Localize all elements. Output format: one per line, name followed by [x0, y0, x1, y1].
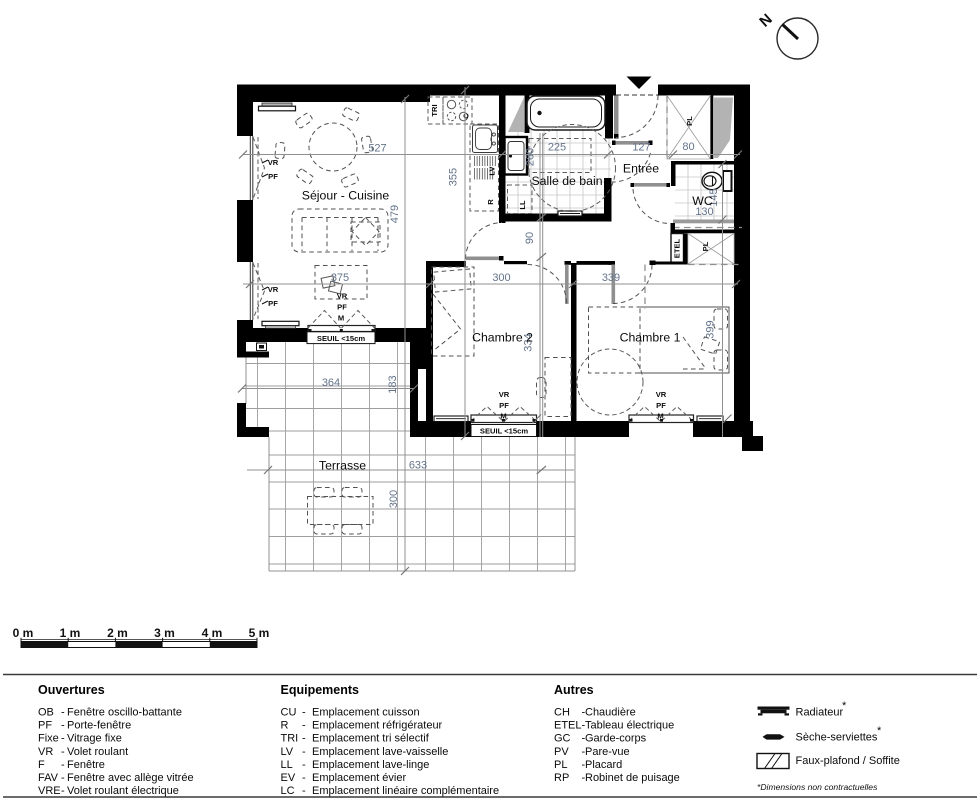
svg-text:Robinet de puisage: Robinet de puisage: [585, 772, 680, 784]
svg-text:3 m: 3 m: [154, 626, 175, 640]
svg-text:ETEL: ETEL: [554, 720, 582, 732]
svg-text:Volet roulant: Volet roulant: [67, 746, 128, 758]
svg-text:Garde-corps: Garde-corps: [585, 733, 647, 745]
svg-text:PF: PF: [38, 720, 52, 732]
svg-text:CU: CU: [281, 707, 297, 719]
svg-text:Porte-fenêtre: Porte-fenêtre: [67, 720, 131, 732]
svg-text:Emplacement cuisson: Emplacement cuisson: [312, 707, 420, 719]
svg-text:PF: PF: [337, 303, 347, 312]
svg-text:Fixe: Fixe: [38, 733, 59, 745]
svg-text:LV: LV: [488, 165, 497, 175]
svg-text:Chaudière: Chaudière: [585, 707, 636, 719]
svg-text:1 m: 1 m: [60, 626, 81, 640]
svg-text:Emplacement linéaire complémen: Emplacement linéaire complémentaire: [312, 785, 499, 797]
svg-text:-: -: [302, 746, 306, 758]
svg-text:LV: LV: [281, 746, 294, 758]
svg-text:*: *: [877, 725, 882, 737]
svg-text:633: 633: [409, 460, 427, 472]
svg-text:PL: PL: [701, 241, 710, 251]
svg-text:5 m: 5 m: [249, 626, 270, 640]
svg-text:ETEL: ETEL: [673, 238, 682, 258]
svg-text:*Dimensions non contractuelles: *Dimensions non contractuelles: [757, 782, 878, 792]
svg-text:Tableau électrique: Tableau électrique: [585, 720, 674, 732]
svg-text:VR: VR: [337, 292, 348, 301]
svg-text:PF: PF: [268, 172, 278, 181]
svg-text:Fenêtre: Fenêtre: [67, 759, 105, 771]
svg-text:VR: VR: [38, 746, 53, 758]
svg-text:Faux-plafond / Soffite: Faux-plafond / Soffite: [796, 755, 900, 767]
svg-text:VR: VR: [656, 390, 667, 399]
svg-text:339: 339: [602, 272, 620, 284]
svg-text:VR: VR: [268, 285, 279, 294]
svg-text:Emplacement tri sélectif: Emplacement tri sélectif: [312, 733, 430, 745]
svg-text:WC: WC: [692, 194, 713, 208]
svg-text:Séjour - Cuisine: Séjour - Cuisine: [302, 189, 390, 203]
svg-text:CH: CH: [554, 707, 570, 719]
svg-text:VR: VR: [268, 158, 279, 167]
svg-text:-: -: [302, 759, 306, 771]
svg-text:R: R: [281, 720, 289, 732]
svg-text:-: -: [302, 785, 306, 797]
svg-text:-: -: [61, 772, 65, 784]
svg-text:300: 300: [492, 272, 510, 284]
svg-text:355: 355: [448, 168, 460, 186]
svg-text:-: -: [61, 733, 65, 745]
svg-text:-: -: [61, 720, 65, 732]
svg-text:SEUIL <15cm: SEUIL <15cm: [480, 427, 528, 436]
svg-text:-: -: [302, 707, 306, 719]
svg-text:RP: RP: [554, 772, 569, 784]
svg-text:Ouvertures: Ouvertures: [38, 683, 105, 697]
svg-text:GC: GC: [554, 733, 571, 745]
svg-text:EV: EV: [281, 772, 296, 784]
svg-text:300: 300: [388, 490, 400, 508]
svg-text:Radiateur: Radiateur: [796, 707, 844, 719]
svg-text:LL: LL: [281, 759, 293, 771]
svg-text:Chambre 2: Chambre 2: [472, 331, 533, 345]
svg-text:Emplacement réfrigérateur: Emplacement réfrigérateur: [312, 720, 443, 732]
svg-text:M: M: [338, 314, 344, 323]
svg-text:PF: PF: [499, 401, 509, 410]
svg-text:90: 90: [524, 232, 536, 244]
svg-text:Autres: Autres: [554, 683, 594, 697]
svg-text:225: 225: [548, 142, 566, 154]
svg-text:399: 399: [705, 320, 717, 338]
svg-text:PF: PF: [656, 401, 666, 410]
svg-text:80: 80: [682, 141, 694, 153]
svg-text:527: 527: [368, 143, 386, 155]
svg-text:SEUIL <15cm: SEUIL <15cm: [317, 334, 365, 343]
svg-text:Vitrage fixe: Vitrage fixe: [67, 733, 122, 745]
svg-text:LC: LC: [281, 785, 295, 797]
svg-text:VR: VR: [499, 390, 510, 399]
svg-text:183: 183: [387, 375, 399, 393]
svg-text:TRI: TRI: [281, 733, 299, 745]
svg-text:-: -: [61, 785, 65, 797]
svg-text:4 m: 4 m: [202, 626, 223, 640]
svg-text:Pare-vue: Pare-vue: [585, 746, 630, 758]
svg-text:F: F: [38, 759, 45, 771]
svg-text:TRI: TRI: [430, 104, 439, 116]
svg-text:-: -: [61, 759, 65, 771]
svg-text:PL: PL: [685, 116, 694, 126]
svg-text:479: 479: [389, 205, 401, 223]
svg-text:C: C: [462, 113, 471, 119]
svg-text:Entrée: Entrée: [623, 162, 659, 176]
svg-text:Sèche-serviettes: Sèche-serviettes: [796, 732, 878, 744]
svg-text:FAV: FAV: [38, 772, 59, 784]
svg-text:Volet roulant électrique: Volet roulant électrique: [67, 785, 179, 797]
svg-text:Equipements: Equipements: [281, 683, 360, 697]
svg-text:PV: PV: [554, 746, 569, 758]
svg-text:-: -: [302, 733, 306, 745]
svg-text:Chambre 1: Chambre 1: [620, 331, 681, 345]
svg-text:LL: LL: [518, 200, 527, 210]
svg-text:-: -: [302, 772, 306, 784]
svg-text:Emplacement lave-vaisselle: Emplacement lave-vaisselle: [312, 746, 448, 758]
svg-text:Emplacement lave-linge: Emplacement lave-linge: [312, 759, 429, 771]
svg-text:OB: OB: [38, 707, 54, 719]
svg-text:PF: PF: [268, 299, 278, 308]
svg-text:364: 364: [322, 377, 340, 389]
svg-text:Fenêtre avec allège vitrée: Fenêtre avec allège vitrée: [67, 772, 194, 784]
svg-text:VRE: VRE: [38, 785, 61, 797]
svg-text:-: -: [61, 707, 65, 719]
svg-text:R: R: [486, 199, 495, 205]
svg-text:127: 127: [632, 142, 650, 154]
svg-text:Fenêtre oscillo-battante: Fenêtre oscillo-battante: [67, 707, 182, 719]
svg-text:260: 260: [525, 148, 537, 166]
svg-text:Placard: Placard: [585, 759, 622, 771]
svg-text:2 m: 2 m: [107, 626, 128, 640]
svg-text:Salle de bain: Salle de bain: [531, 174, 602, 188]
svg-text:Terrasse: Terrasse: [319, 459, 366, 473]
svg-text:PL: PL: [554, 759, 567, 771]
svg-text:-: -: [61, 746, 65, 758]
svg-text:-: -: [302, 720, 306, 732]
svg-text:*: *: [842, 700, 847, 712]
svg-text:Emplacement évier: Emplacement évier: [312, 772, 406, 784]
svg-text:0 m: 0 m: [13, 626, 34, 640]
svg-text:375: 375: [331, 272, 349, 284]
